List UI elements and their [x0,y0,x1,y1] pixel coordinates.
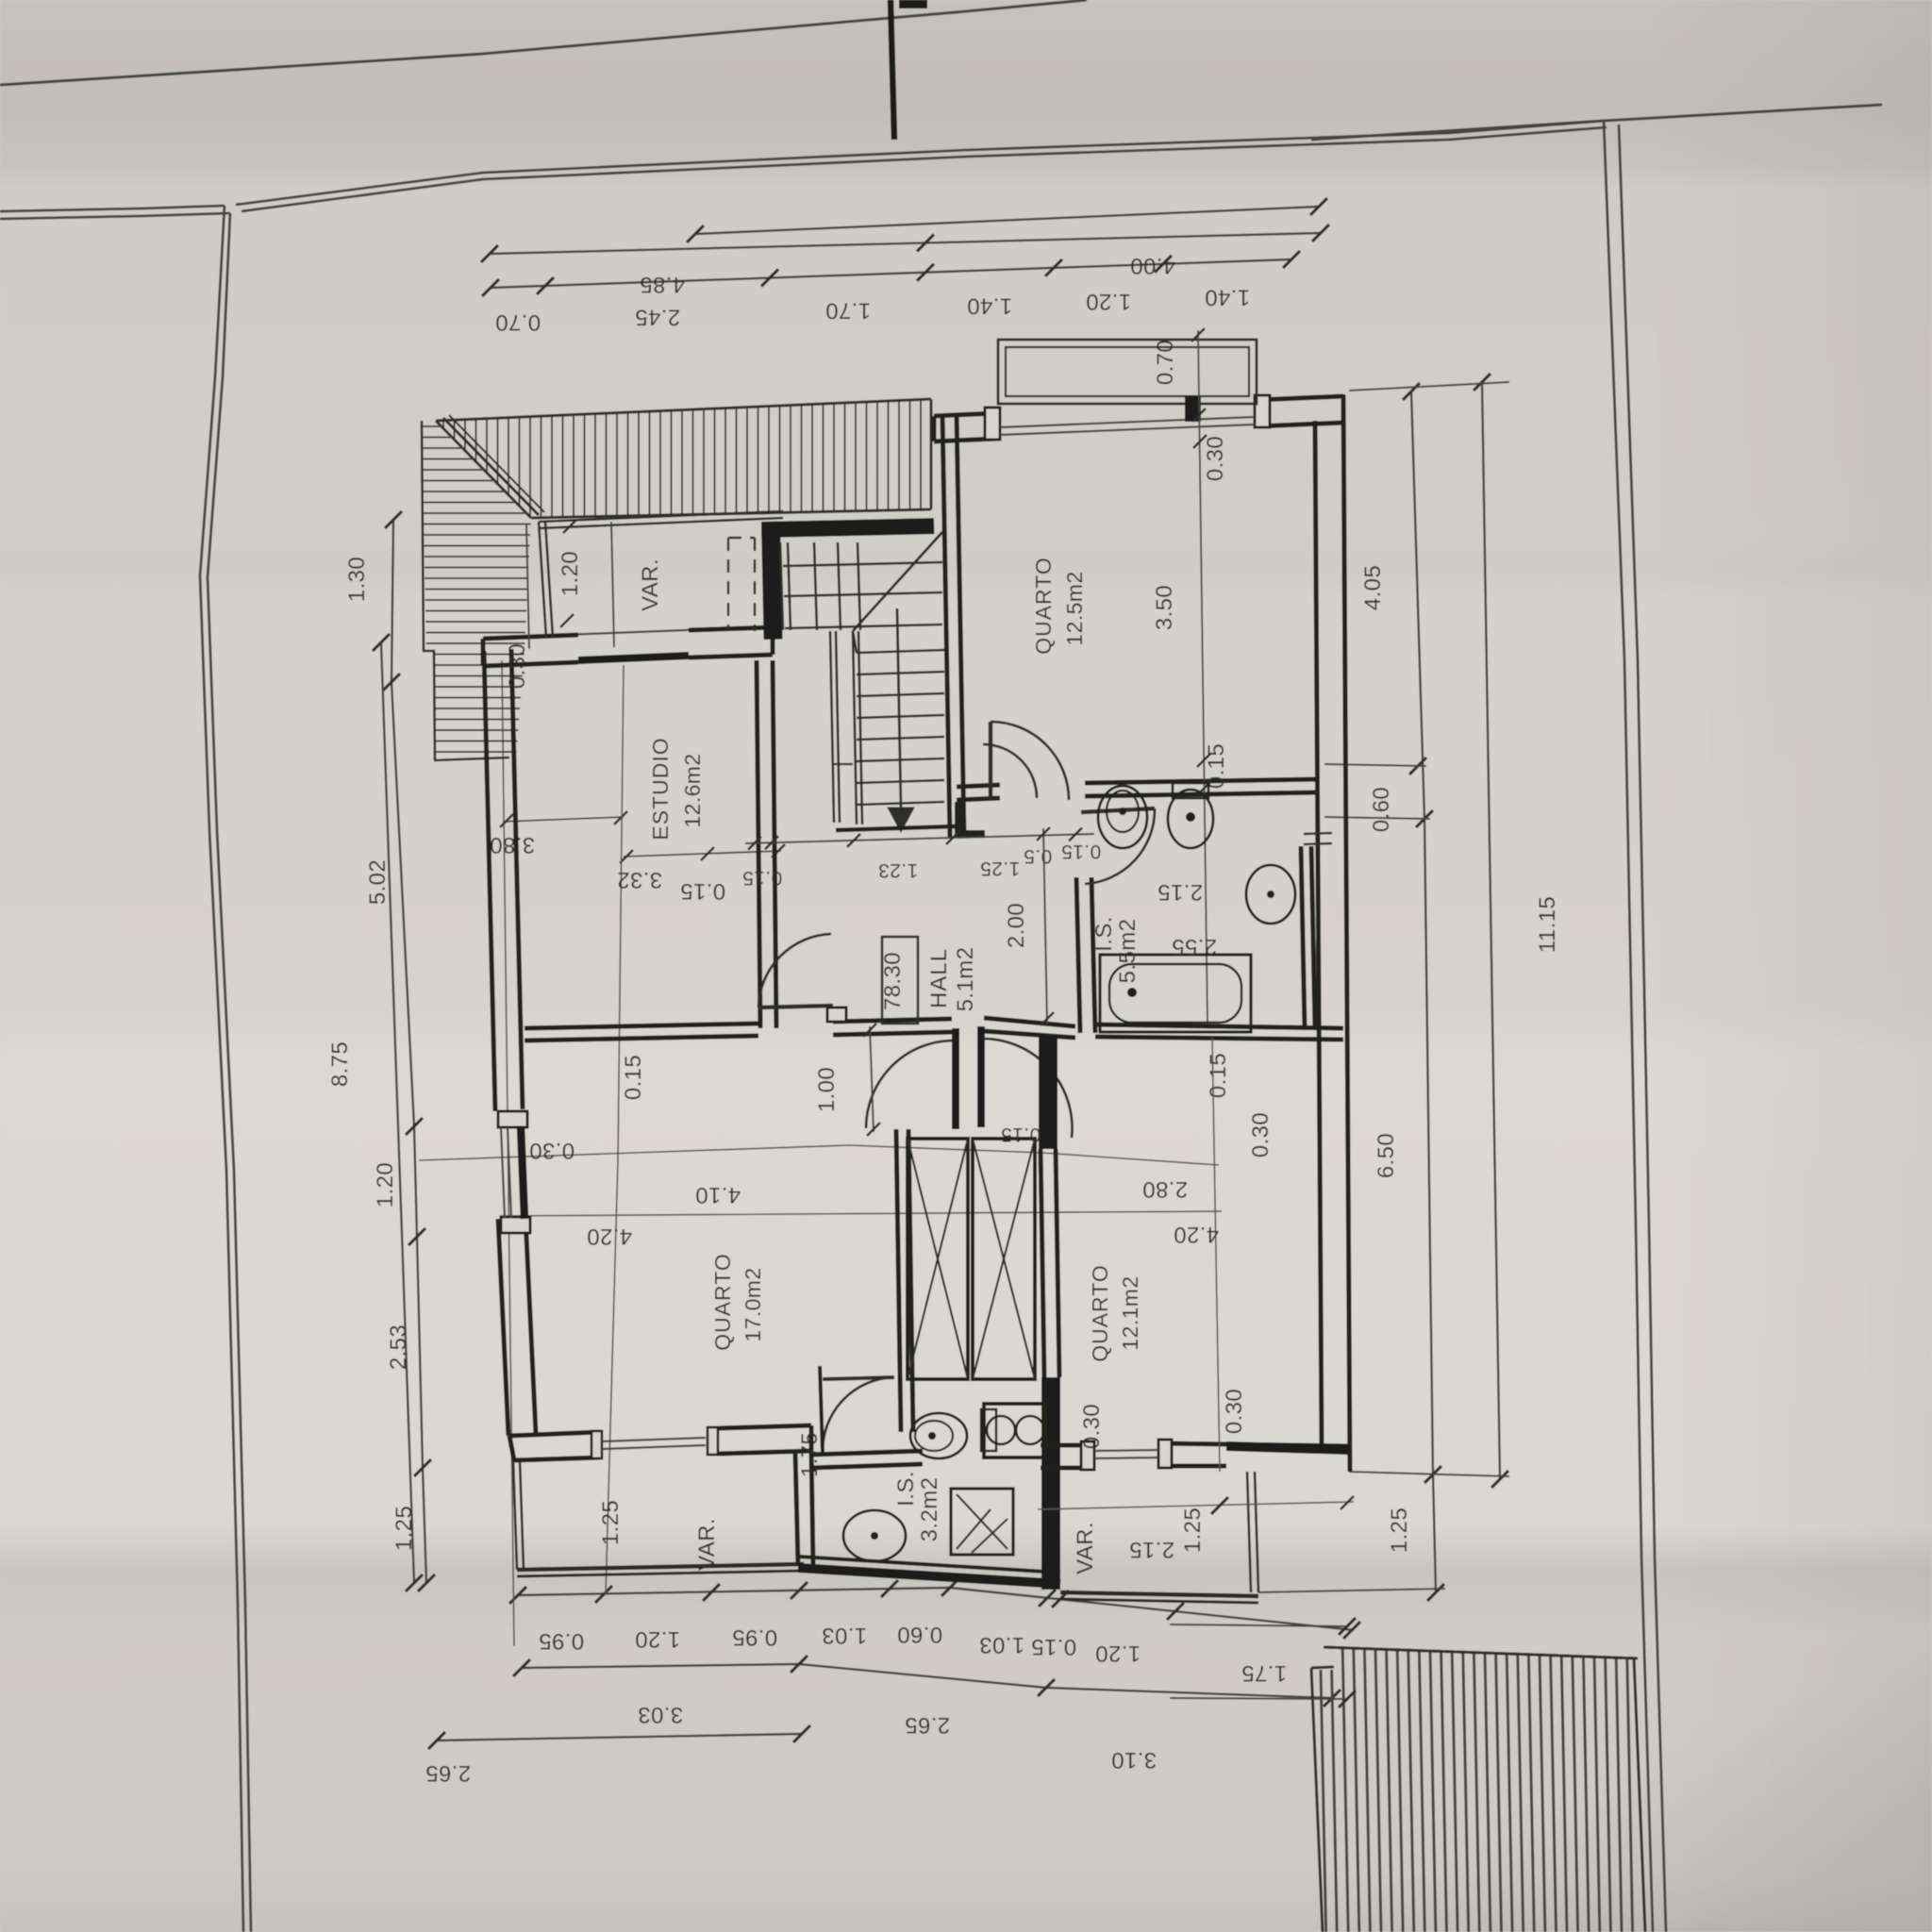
svg-text:0.5: 0.5 [1024,845,1052,867]
svg-text:4.05: 4.05 [1360,565,1386,610]
svg-text:0.15: 0.15 [1031,1634,1076,1659]
svg-text:2.80: 2.80 [1142,1176,1188,1202]
svg-text:0.70: 0.70 [495,309,541,335]
svg-text:2.65: 2.65 [425,1760,471,1786]
svg-text:3.10: 3.10 [1111,1747,1157,1773]
svg-text:4.85: 4.85 [640,272,685,297]
svg-text:0.30: 0.30 [1222,1389,1247,1434]
svg-text:VAR.: VAR. [694,1518,720,1571]
svg-text:78.30: 78.30 [880,952,906,1010]
svg-text:2.45: 2.45 [635,305,680,330]
svg-text:1.23: 1.23 [878,859,918,881]
svg-text:1.75: 1.75 [797,1432,823,1477]
svg-text:VAR.: VAR. [1073,1522,1098,1574]
svg-text:12.1m2: 12.1m2 [1118,1275,1142,1350]
svg-text:11.15: 11.15 [1535,896,1560,953]
svg-text:HALL: HALL [926,948,952,1008]
svg-text:0.15: 0.15 [1001,1124,1041,1145]
svg-text:1.03: 1.03 [979,1632,1024,1657]
svg-text:0.30: 0.30 [1248,1112,1274,1158]
svg-text:2.00: 2.00 [1004,903,1029,948]
svg-text:0.60: 0.60 [1369,787,1394,832]
svg-text:0.70: 0.70 [1153,340,1178,385]
svg-text:12.5m2: 12.5m2 [1062,571,1087,645]
svg-text:0.30: 0.30 [1079,1404,1105,1449]
svg-text:I.S.: I.S. [1091,916,1117,952]
svg-text:QUARTO: QUARTO [1088,1264,1112,1362]
svg-text:8.75: 8.75 [327,1041,353,1087]
svg-text:4.10: 4.10 [695,1182,741,1207]
svg-text:1.25: 1.25 [1387,1507,1412,1553]
svg-text:1.03: 1.03 [822,1623,867,1648]
svg-text:5.1m2: 5.1m2 [953,947,978,1012]
svg-text:0.95: 0.95 [732,1624,777,1650]
svg-text:0.15: 0.15 [742,867,782,889]
svg-text:1.00: 1.00 [814,1067,840,1112]
svg-text:1.30: 1.30 [344,557,370,602]
svg-text:1.25: 1.25 [1180,1507,1206,1553]
svg-text:0.15: 0.15 [1206,1053,1231,1098]
svg-text:QUARTO: QUARTO [710,1253,735,1351]
svg-text:VAR.: VAR. [638,558,663,611]
svg-text:2.15: 2.15 [1158,879,1203,905]
svg-text:6.50: 6.50 [1374,1133,1399,1178]
svg-text:12.6m2: 12.6m2 [680,753,705,827]
svg-text:0.30: 0.30 [505,643,530,689]
svg-text:0.60: 0.60 [897,1622,942,1647]
svg-text:I.S.: I.S. [893,1471,919,1507]
svg-text:3.32: 3.32 [617,867,662,892]
svg-text:QUARTO: QUARTO [1031,557,1056,655]
svg-text:2.15: 2.15 [1129,1537,1174,1562]
svg-text:0.15: 0.15 [621,1055,646,1100]
svg-text:1.70: 1.70 [825,298,871,324]
svg-text:0.15: 0.15 [680,878,725,904]
svg-text:17.0m2: 17.0m2 [741,1267,765,1341]
svg-text:0.30: 0.30 [529,1138,575,1163]
svg-text:1.20: 1.20 [1095,1641,1141,1666]
svg-text:2.65: 2.65 [905,1712,950,1738]
svg-text:3.03: 3.03 [638,1702,683,1727]
svg-text:1.20: 1.20 [558,551,583,596]
svg-text:ESTUDIO: ESTUDIO [648,737,673,840]
svg-text:1.25: 1.25 [598,1500,624,1545]
svg-text:1.40: 1.40 [1205,284,1250,309]
svg-text:5.02: 5.02 [365,859,391,905]
svg-text:5.5m2: 5.5m2 [1115,919,1141,984]
svg-text:3.2m2: 3.2m2 [917,1477,942,1542]
svg-text:4.20: 4.20 [587,1224,632,1249]
svg-text:4.20: 4.20 [1174,1222,1219,1247]
svg-text:1.20: 1.20 [1086,289,1131,314]
svg-text:1.75: 1.75 [1241,1660,1287,1686]
svg-text:4.00: 4.00 [1130,253,1175,278]
svg-text:3.80: 3.80 [490,832,535,858]
svg-text:1.40: 1.40 [967,292,1012,318]
svg-text:0.95: 0.95 [539,1628,584,1654]
svg-text:2.55: 2.55 [1172,934,1217,959]
svg-text:3.50: 3.50 [1152,585,1177,630]
svg-text:0.30: 0.30 [1203,436,1228,481]
svg-text:1.25: 1.25 [980,858,1020,879]
svg-text:1.20: 1.20 [635,1626,680,1652]
svg-text:1.20: 1.20 [373,1162,398,1207]
svg-text:0.15: 0.15 [1061,841,1101,862]
